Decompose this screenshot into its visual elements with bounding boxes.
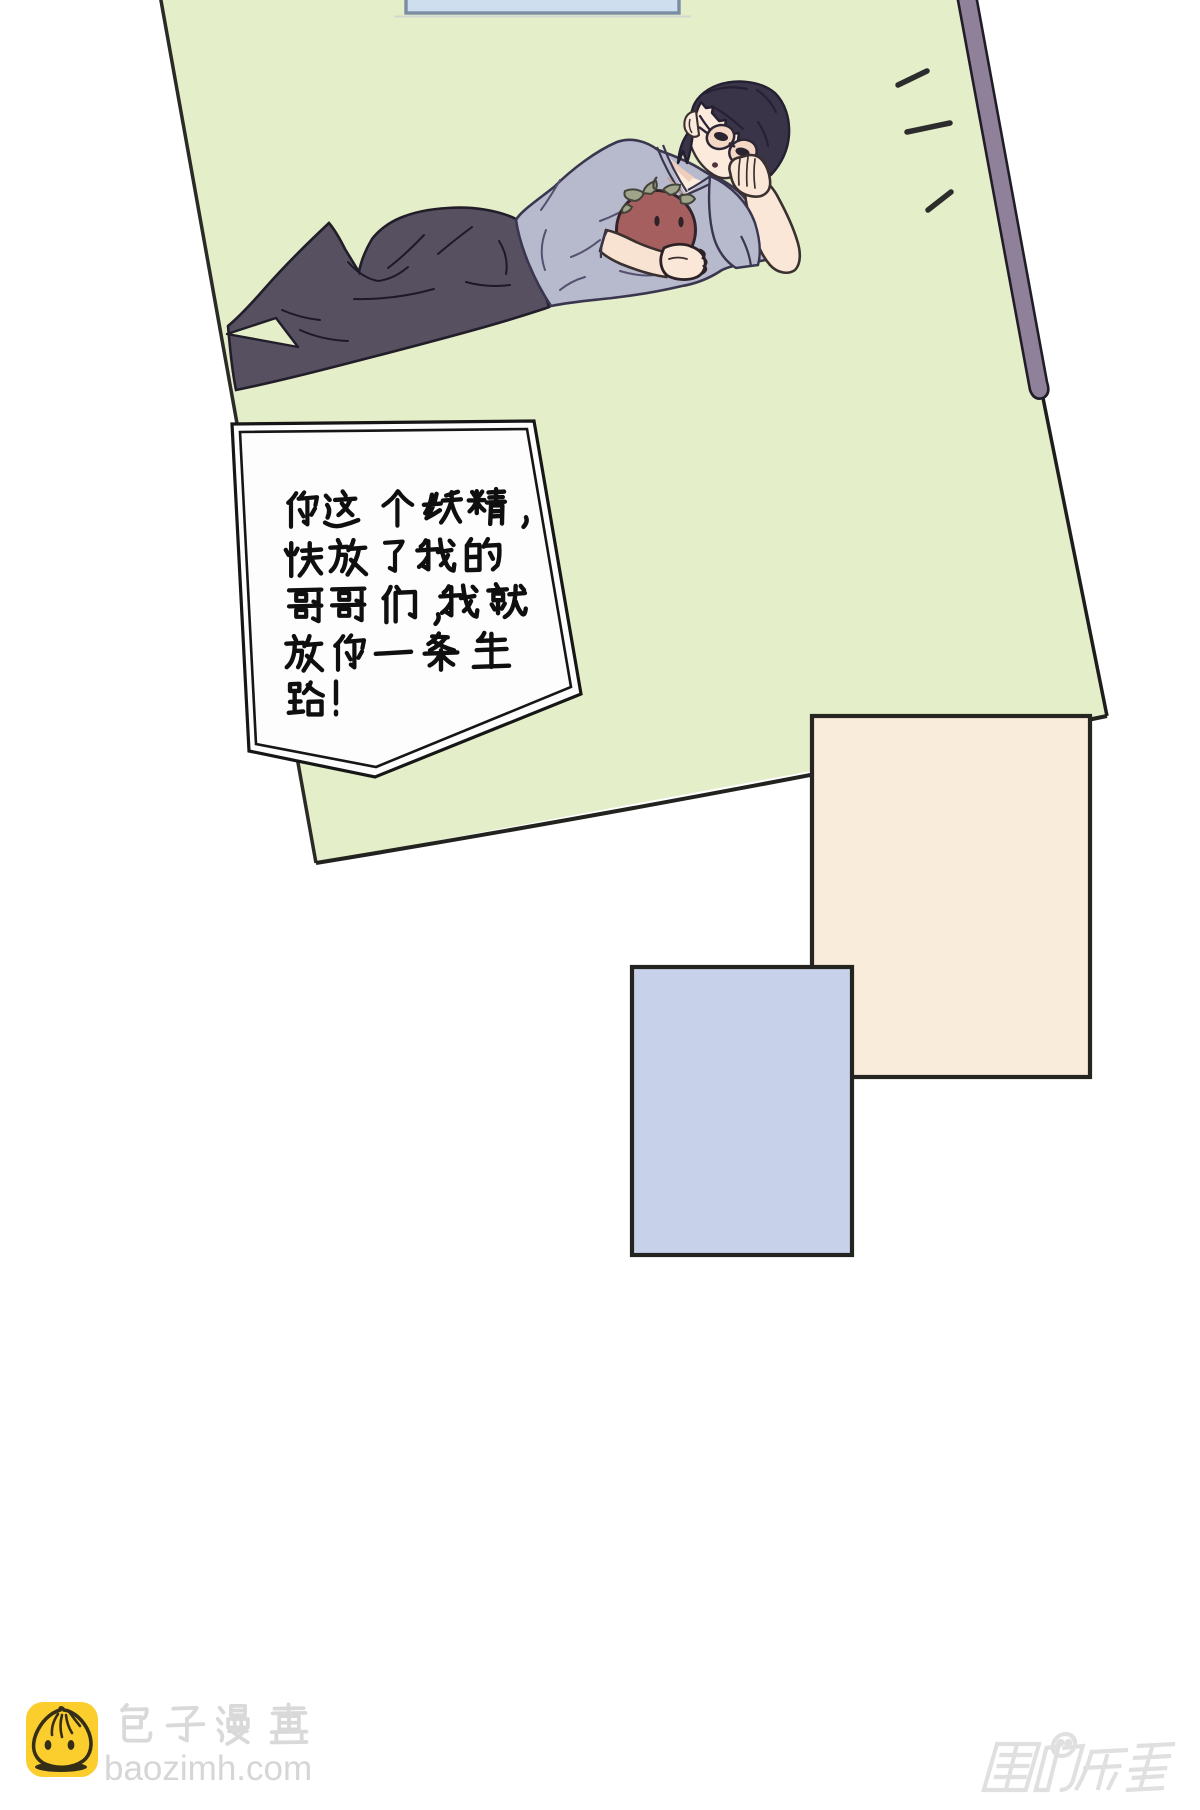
svg-text:baozimh.com: baozimh.com — [104, 1749, 312, 1788]
